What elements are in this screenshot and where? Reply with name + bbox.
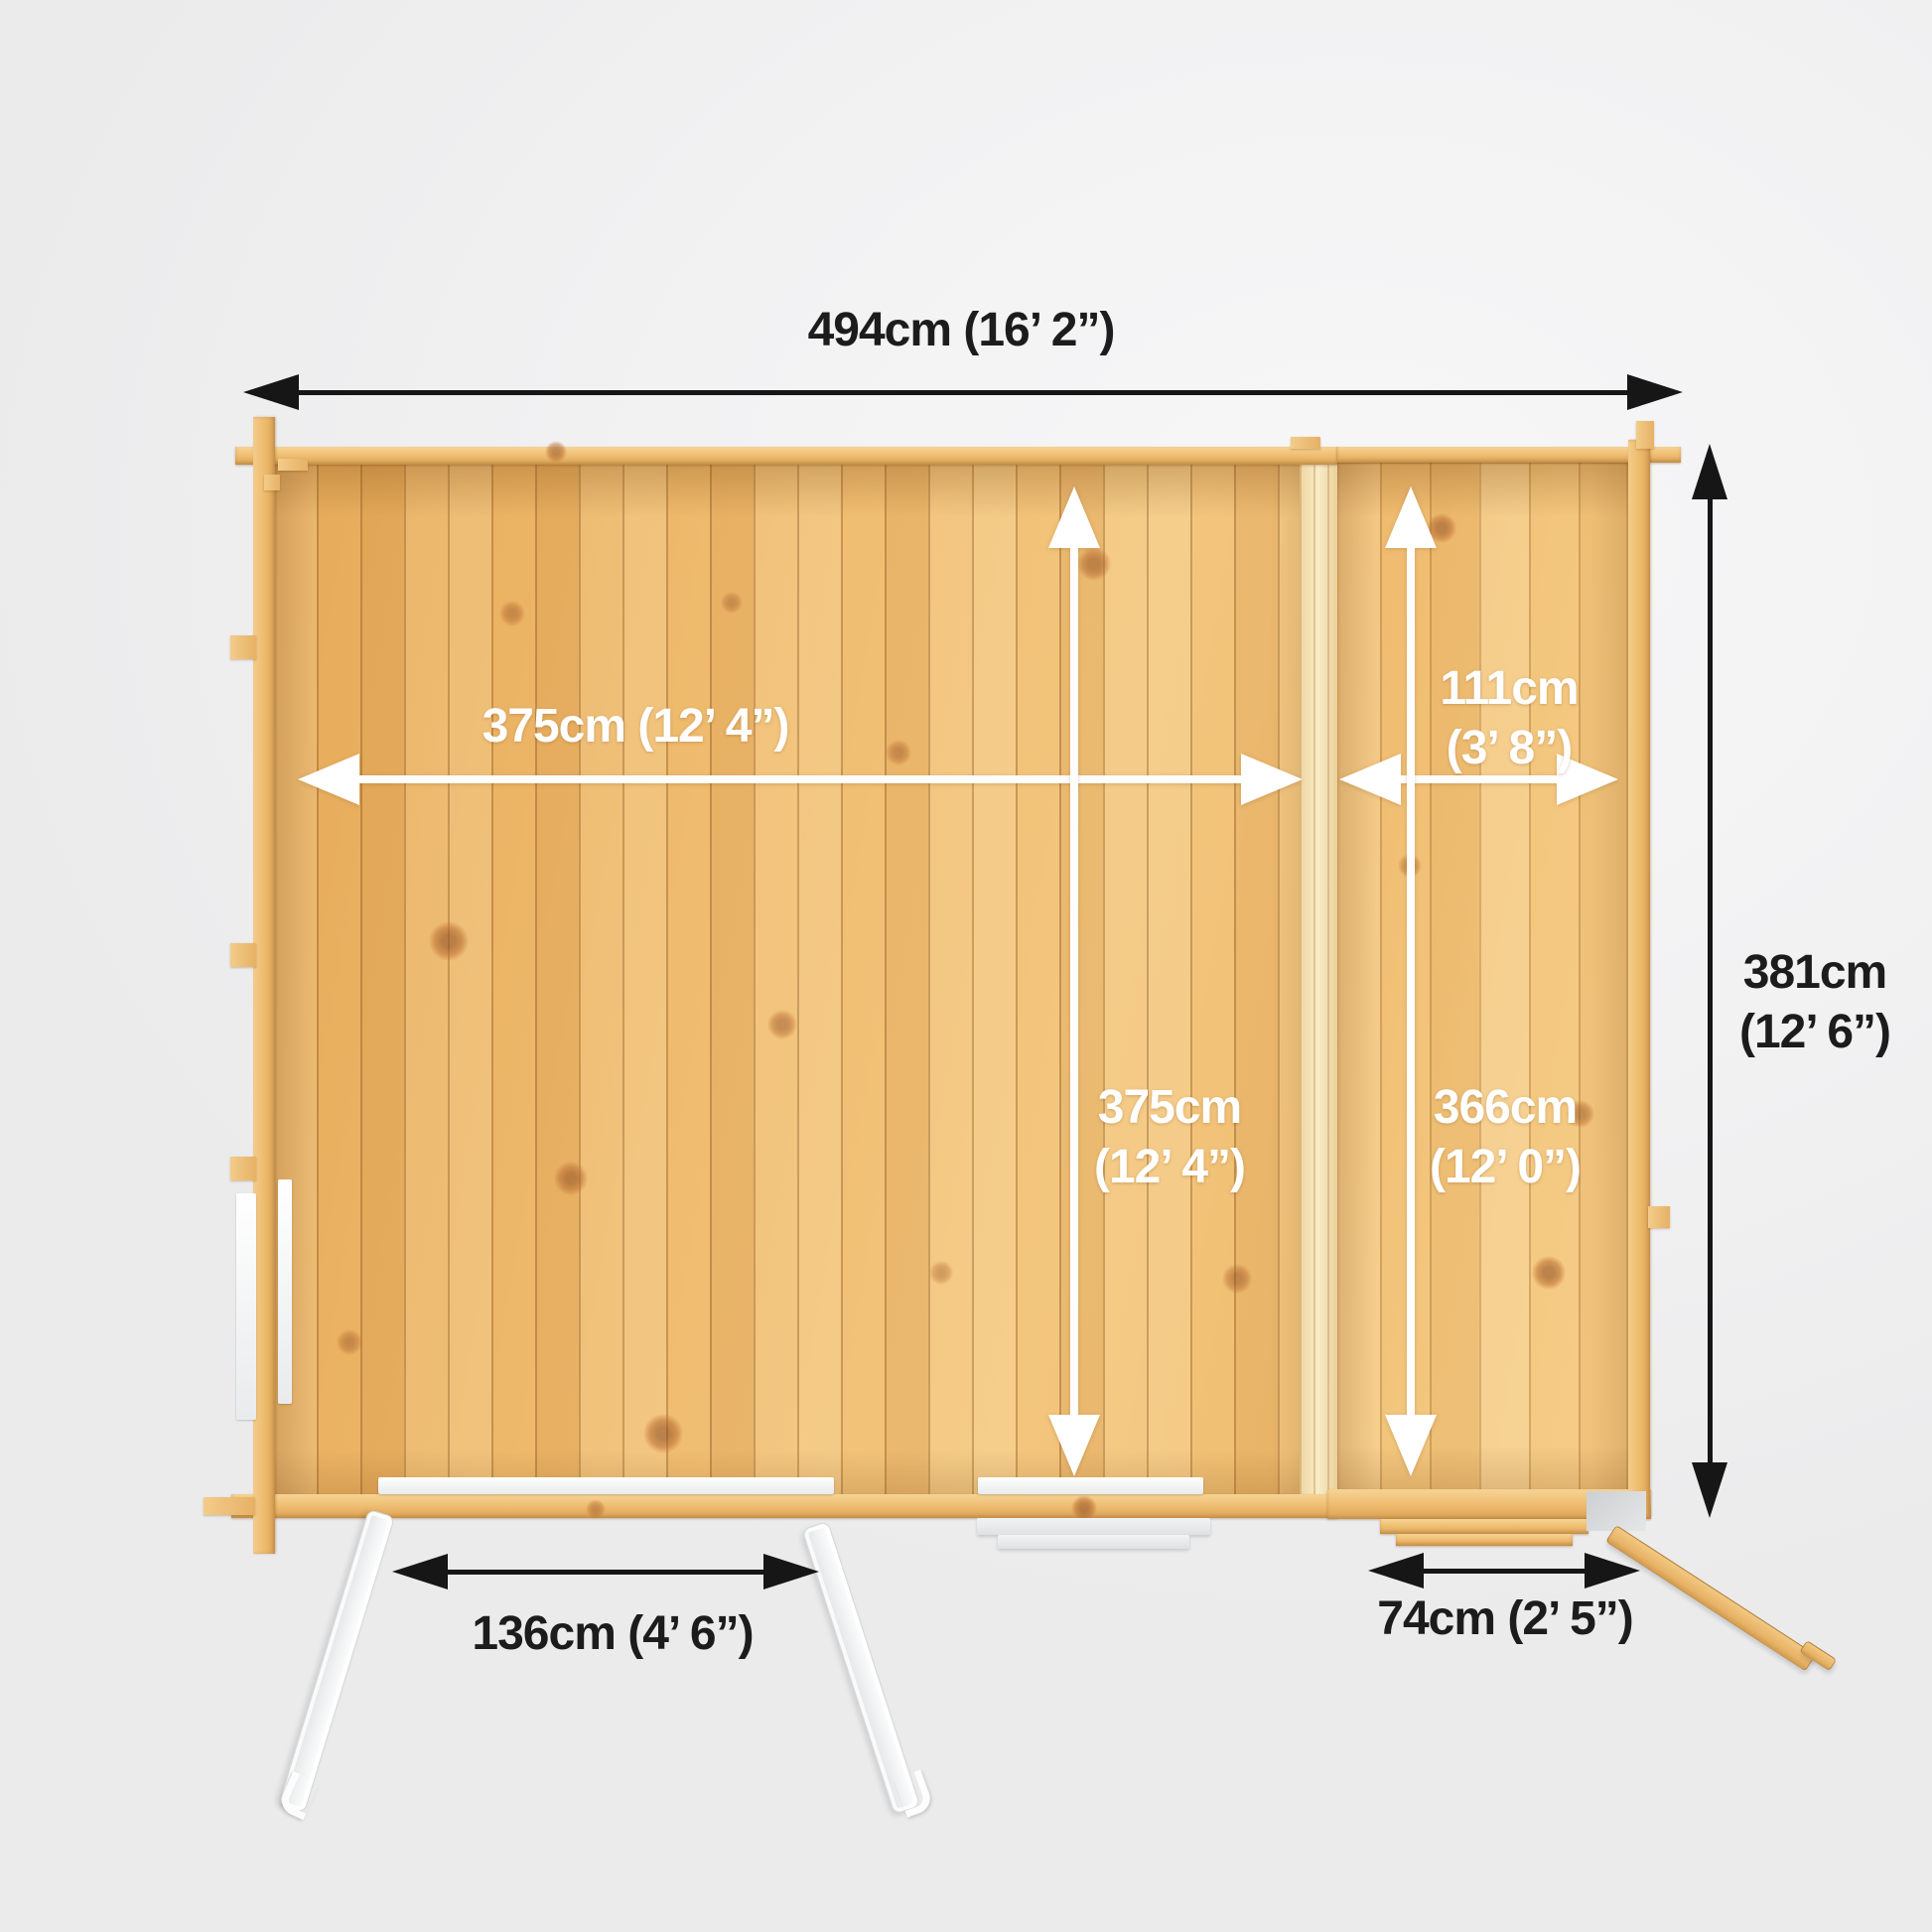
partition-wall	[1300, 452, 1337, 1506]
wood-knot	[429, 921, 469, 961]
wood-knot	[721, 592, 743, 614]
bottom-window-sill	[978, 1477, 1203, 1494]
main-door-sill	[378, 1477, 834, 1494]
annex-right-wall	[1628, 440, 1650, 1517]
dim-arrow-overall-width	[243, 374, 1683, 410]
left-wall-tab-3	[230, 1157, 256, 1180]
dim-label-overall-depth: 381cm (12’ 6”)	[1739, 943, 1890, 1062]
annex-floor-shading	[1330, 462, 1628, 1491]
annex-sill-step-2	[1396, 1534, 1573, 1546]
dimension-line	[1416, 1569, 1592, 1574]
corner-stub-annex-top-right	[1636, 421, 1654, 449]
dim-arrow-main-width	[298, 754, 1303, 805]
dim-arrow-annex-door-width	[1368, 1553, 1640, 1588]
arrowhead-down-icon	[1048, 1415, 1100, 1476]
corner-stub-top-left	[278, 459, 308, 471]
left-wall	[253, 417, 275, 1554]
left-wall-tab-2	[230, 943, 256, 967]
wood-knot	[1532, 1256, 1566, 1290]
arrowhead-right-icon	[1627, 374, 1683, 410]
main-door-left-panel	[278, 1509, 395, 1814]
annex-sill-step-1	[1380, 1519, 1588, 1534]
top-wall-main	[235, 447, 1337, 465]
dim-arrow-annex-depth	[1385, 486, 1437, 1476]
dimension-line	[1708, 491, 1713, 1470]
wood-knot	[545, 441, 567, 463]
wood-knot	[643, 1414, 683, 1453]
annex-right-wall-tab	[1648, 1206, 1670, 1228]
dimension-line	[351, 775, 1249, 783]
arrowhead-right-icon	[1241, 754, 1303, 805]
dim-label-annex-door-width: 74cm (2’ 5”)	[1377, 1589, 1632, 1649]
left-wall-tab-1	[230, 635, 256, 659]
wood-knot	[586, 1499, 606, 1519]
left-window-inner-frame	[278, 1179, 292, 1404]
wood-knot	[499, 601, 525, 626]
dimension-line	[440, 1570, 771, 1575]
bottom-window-outer-step	[998, 1535, 1189, 1549]
floorplan-canvas: 494cm (16’ 2”) 381cm (12’ 6”) 375cm (12’…	[0, 0, 1932, 1932]
dim-label-main-depth: 375cm (12’ 4”)	[1094, 1078, 1245, 1197]
wood-knot	[1222, 1264, 1252, 1294]
arrowhead-up-icon	[1385, 486, 1437, 548]
dim-label-main-door-width: 136cm (4’ 6”)	[472, 1604, 753, 1664]
arrowhead-up-icon	[1048, 486, 1100, 548]
arrowhead-left-icon	[298, 754, 359, 805]
dimension-line	[291, 390, 1635, 395]
bottom-window-outer-frame	[977, 1518, 1210, 1535]
arrowhead-right-icon	[1585, 1553, 1640, 1588]
main-room-floor-shading	[273, 462, 1308, 1496]
dimension-line	[1070, 540, 1078, 1423]
corner-stub-annex-top-left	[1291, 437, 1320, 449]
wood-knot	[767, 1010, 797, 1039]
annex-door-opening	[1587, 1491, 1646, 1531]
bottom-wall-main	[231, 1494, 1337, 1518]
arrowhead-right-icon	[763, 1554, 819, 1589]
corner-stub-bottom-left	[204, 1497, 255, 1515]
dim-arrow-overall-depth	[1692, 444, 1727, 1518]
left-window-outer-frame	[236, 1193, 256, 1420]
dimension-line	[1407, 540, 1415, 1423]
dim-arrow-main-door-width	[392, 1554, 819, 1589]
dim-arrow-main-depth	[1048, 486, 1100, 1476]
main-door-right-panel	[801, 1521, 920, 1815]
wood-knot	[929, 1261, 953, 1285]
dim-label-annex-width: 111cm (3’ 8”)	[1440, 659, 1578, 778]
arrowhead-down-icon	[1385, 1415, 1437, 1476]
dim-label-overall-width: 494cm (16’ 2”)	[808, 301, 1115, 360]
dim-label-main-width: 375cm (12’ 4”)	[483, 697, 789, 757]
corner-stub-top-left-outer	[264, 475, 280, 490]
wood-knot	[554, 1162, 588, 1195]
annex-door-panel	[1605, 1525, 1816, 1671]
wood-knot	[337, 1329, 362, 1355]
arrowhead-down-icon	[1692, 1462, 1727, 1518]
dim-label-annex-depth: 366cm (12’ 0”)	[1430, 1078, 1581, 1197]
